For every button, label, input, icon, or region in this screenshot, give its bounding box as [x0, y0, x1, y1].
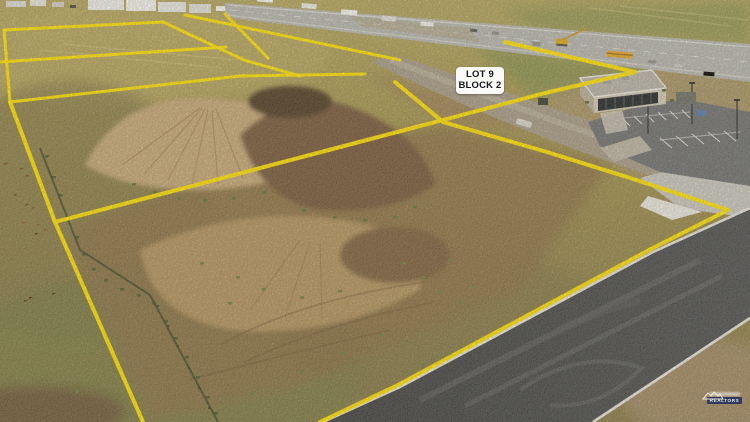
- lot-label: LOT 9 BLOCK 2: [456, 67, 504, 94]
- lot-label-line1: LOT 9: [457, 69, 503, 80]
- watermark-brand-word: [710, 392, 740, 396]
- brokerage-watermark: REALTORS: [702, 391, 747, 404]
- aerial-photo-canvas: [0, 0, 750, 422]
- aerial-photo: LOT 9 BLOCK 2 REALTORS: [0, 0, 750, 422]
- grain-light: [0, 0, 750, 422]
- lot-label-line2: BLOCK 2: [457, 80, 503, 91]
